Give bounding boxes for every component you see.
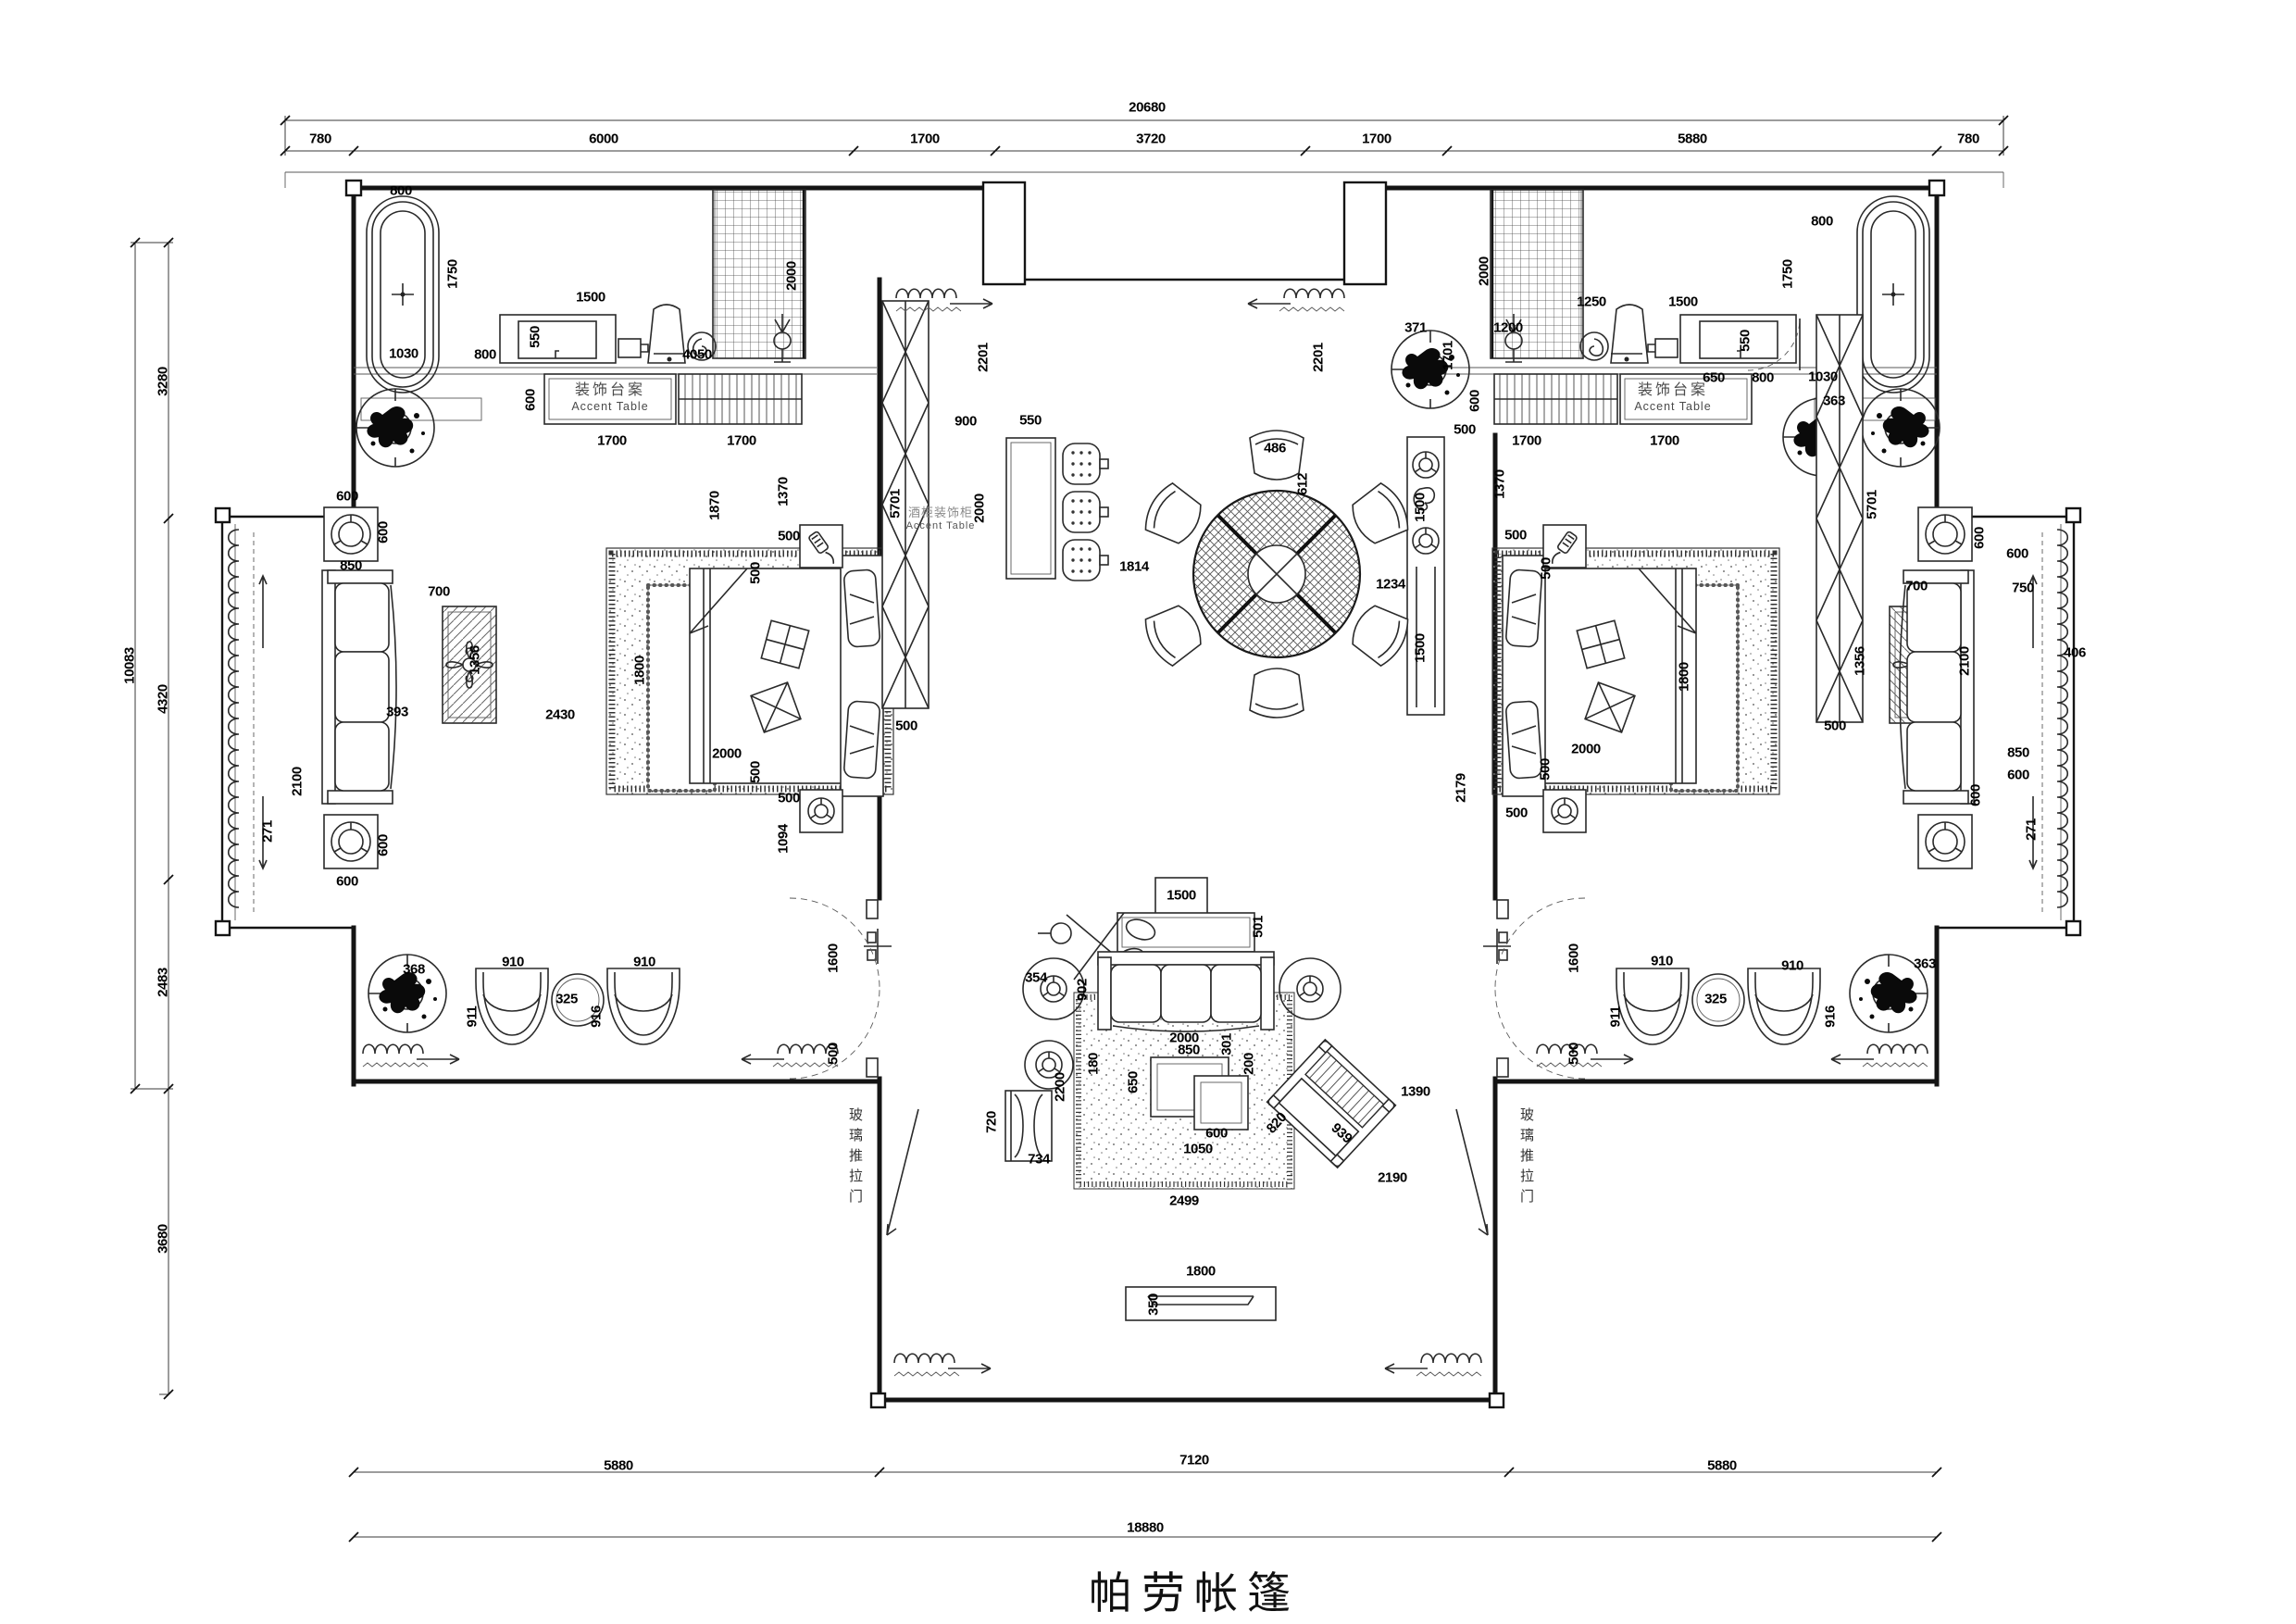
dimension-label: 800 xyxy=(1752,371,1774,385)
dimension-label: 1701 xyxy=(1441,341,1455,370)
dimension-label: 500 xyxy=(778,792,800,806)
dimension-label: 180 xyxy=(1087,1053,1101,1075)
dimension-label: 354 xyxy=(1025,971,1047,985)
dimension-label: 20680 xyxy=(1129,101,1166,115)
dimension-label: 1800 xyxy=(1678,662,1691,692)
dimension-label: 550 xyxy=(1739,330,1753,352)
dimension-label: 820 xyxy=(1264,1110,1289,1136)
dimension-label: 368 xyxy=(403,963,425,977)
dimension-label: 600 xyxy=(1973,527,1987,549)
dimension-label: 600 xyxy=(336,490,358,504)
dimension-label: 3680 xyxy=(156,1224,170,1254)
dimension-label: 1700 xyxy=(1362,132,1391,146)
dimension-label: 271 xyxy=(2025,818,2039,841)
dimension-label: 3280 xyxy=(156,367,170,396)
dimension-label: 2000 xyxy=(1478,256,1491,286)
dimension-label: 1600 xyxy=(1567,943,1581,973)
dimension-label: 916 xyxy=(1824,1006,1838,1028)
dimension-label: 325 xyxy=(1704,993,1727,1006)
dimension-label: 734 xyxy=(1028,1153,1050,1167)
dimension-label: 2100 xyxy=(291,767,305,796)
dimension-label: 1030 xyxy=(1808,370,1838,384)
dimension-label: 850 xyxy=(2007,746,2029,760)
dimension-label: 1030 xyxy=(389,347,418,361)
dimension-label: 500 xyxy=(1824,719,1846,733)
dimension-label: 1870 xyxy=(708,491,722,520)
dimension-label: 750 xyxy=(2012,581,2034,595)
dimension-label: 700 xyxy=(428,585,450,599)
dimension-label: 780 xyxy=(1957,132,1979,146)
dimension-label: 1700 xyxy=(1512,434,1541,448)
dimension-label: 1234 xyxy=(1376,578,1405,592)
dimension-label: 600 xyxy=(524,389,538,411)
dimension-layer: 2068078060001700372017005880780328010083… xyxy=(0,0,2296,1624)
dimension-label: 2000 xyxy=(712,747,742,761)
dimension-label: 550 xyxy=(1019,414,1042,428)
dimension-label: 600 xyxy=(2007,768,2029,782)
dimension-label: 720 xyxy=(985,1111,999,1133)
dimension-label: 939 xyxy=(1329,1120,1354,1145)
dimension-label: 350 xyxy=(1147,1293,1161,1316)
dimension-label: 501 xyxy=(1252,916,1266,938)
dimension-label: 1390 xyxy=(1401,1085,1430,1099)
dimension-label: 1094 xyxy=(777,824,791,854)
dimension-label: 2499 xyxy=(1169,1194,1199,1208)
dimension-label: 1700 xyxy=(1650,434,1679,448)
dimension-label: 902 xyxy=(1076,979,1090,1001)
dimension-label: 500 xyxy=(778,530,800,543)
dimension-label: 900 xyxy=(955,415,977,429)
dimension-label: 2483 xyxy=(156,968,170,997)
dimension-label: 5701 xyxy=(1865,490,1879,519)
dimension-label: 1814 xyxy=(1119,560,1149,574)
dimension-label: 2000 xyxy=(785,261,799,291)
dimension-label: 500 xyxy=(1540,557,1554,580)
dimension-label: 2100 xyxy=(1958,646,1972,676)
accent-table-label-left: 装饰台案 Accent Table xyxy=(545,381,675,415)
dimension-label: 393 xyxy=(386,706,408,719)
dimension-label: 550 xyxy=(529,326,543,348)
dimension-label: 910 xyxy=(502,956,524,969)
dimension-label: 1370 xyxy=(777,477,791,506)
dimension-label: 800 xyxy=(1811,215,1833,229)
dimension-label: 2000 xyxy=(1571,743,1601,756)
dimension-label: 6000 xyxy=(589,132,618,146)
dimension-label: 600 xyxy=(1969,784,1983,806)
drawing-title: 帕劳帐篷 xyxy=(963,1557,1426,1621)
dimension-label: 600 xyxy=(1205,1127,1228,1141)
dimension-label: 301 xyxy=(1220,1033,1234,1056)
dimension-label: 500 xyxy=(1504,529,1527,543)
dimension-label: 1750 xyxy=(446,259,460,289)
dimension-label: 600 xyxy=(1468,390,1482,412)
dimension-label: 1800 xyxy=(1186,1265,1216,1279)
dimension-label: 500 xyxy=(895,719,917,733)
dimension-label: 500 xyxy=(1539,758,1553,781)
dimension-label: 1800 xyxy=(633,656,647,685)
dimension-label: 600 xyxy=(377,834,391,856)
dimension-label: 700 xyxy=(1905,580,1928,593)
dimension-label: 1500 xyxy=(1668,295,1698,309)
dimension-label: 3720 xyxy=(1136,132,1166,146)
dimension-label: 910 xyxy=(1781,959,1803,973)
dimension-label: 850 xyxy=(1178,1043,1200,1057)
dimension-label: 600 xyxy=(2006,547,2028,561)
dimension-label: 5880 xyxy=(1707,1459,1737,1473)
dimension-label: 800 xyxy=(390,184,412,198)
dimension-label: 500 xyxy=(1454,423,1476,437)
dimension-label: 1600 xyxy=(827,943,841,973)
dimension-label: 2179 xyxy=(1454,773,1468,803)
dimension-label: 1500 xyxy=(1414,633,1428,663)
accent-table-label-right: 装饰台案 Accent Table xyxy=(1608,381,1738,415)
dimension-label: 363 xyxy=(1914,957,1936,971)
glass-sliding-door-label-right: 玻璃推拉门 xyxy=(1519,1107,1533,1209)
dimension-label: 486 xyxy=(1264,442,1286,456)
dimension-label: 1750 xyxy=(1781,259,1795,289)
dimension-label: 500 xyxy=(749,562,763,584)
dimension-label: 1370 xyxy=(1493,469,1507,499)
dimension-label: 500 xyxy=(827,1043,841,1065)
dimension-label: 1356 xyxy=(1853,646,1867,676)
dimension-label: 850 xyxy=(340,559,362,573)
dimension-label: 1500 xyxy=(1414,493,1428,522)
dimension-label: 2430 xyxy=(545,708,575,722)
dimension-label: 4050 xyxy=(682,348,712,362)
dimension-label: 650 xyxy=(1127,1071,1141,1093)
dimension-label: 612 xyxy=(1296,473,1310,495)
dimension-label: 600 xyxy=(377,521,391,543)
glass-sliding-door-label-left: 玻璃推拉门 xyxy=(848,1107,862,1209)
dimension-label: 7120 xyxy=(1179,1454,1209,1468)
dimension-label: 1700 xyxy=(727,434,756,448)
dimension-label: 911 xyxy=(1609,1006,1623,1028)
dimension-label: 325 xyxy=(555,993,578,1006)
dimension-label: 911 xyxy=(466,1006,480,1028)
dimension-label: 800 xyxy=(474,348,496,362)
dimension-label: 1050 xyxy=(1183,1143,1213,1156)
dimension-label: 363 xyxy=(1823,394,1845,408)
dimension-label: 1200 xyxy=(1493,321,1523,335)
dimension-label: 916 xyxy=(590,1006,604,1028)
wine-cabinet-label: 酒柜装饰柜 Accent Table xyxy=(885,506,996,533)
dimension-label: 2201 xyxy=(977,343,991,372)
dimension-label: 500 xyxy=(1505,806,1528,820)
dimension-label: 500 xyxy=(1567,1043,1581,1065)
dimension-label: 271 xyxy=(261,820,275,843)
floorplan-canvas: 2068078060001700372017005880780328010083… xyxy=(0,0,2296,1624)
dimension-label: 1250 xyxy=(1577,295,1606,309)
dimension-label: 1700 xyxy=(597,434,627,448)
dimension-label: 500 xyxy=(749,761,763,783)
dimension-label: 1500 xyxy=(576,291,605,305)
dimension-label: 2201 xyxy=(1312,343,1326,372)
dimension-label: 371 xyxy=(1404,321,1427,335)
dimension-label: 200 xyxy=(1242,1053,1256,1075)
dimension-label: 18880 xyxy=(1127,1521,1164,1535)
dimension-label: 10083 xyxy=(123,647,137,684)
dimension-label: 2190 xyxy=(1378,1171,1407,1185)
dimension-label: 910 xyxy=(1651,955,1673,968)
dimension-label: 780 xyxy=(309,132,331,146)
dimension-label: 910 xyxy=(633,956,655,969)
dimension-label: 406 xyxy=(2064,646,2086,660)
dimension-label: 5880 xyxy=(1678,132,1707,146)
dimension-label: 2200 xyxy=(1054,1072,1067,1102)
dimension-label: 1356 xyxy=(468,645,482,675)
dimension-label: 600 xyxy=(336,875,358,889)
dimension-label: 4320 xyxy=(156,684,170,714)
dimension-label: 1700 xyxy=(910,132,940,146)
dimension-label: 5880 xyxy=(604,1459,633,1473)
dimension-label: 1500 xyxy=(1167,889,1196,903)
